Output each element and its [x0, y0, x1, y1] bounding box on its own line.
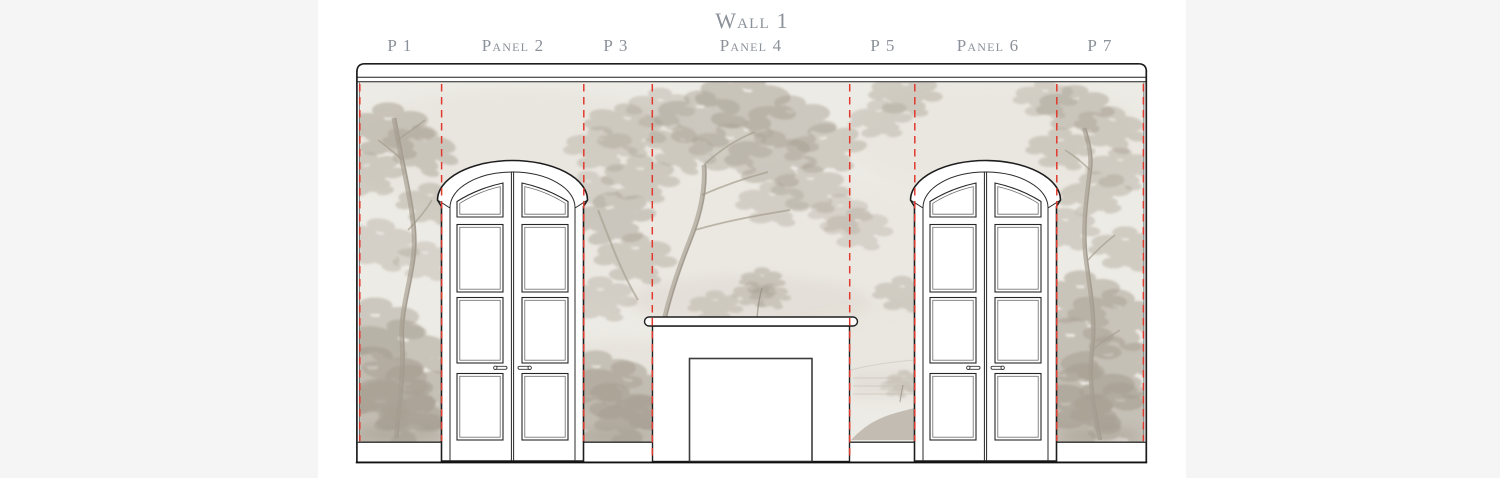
left-door	[438, 161, 588, 462]
fireplace	[645, 317, 858, 462]
drawing-page: Wall 1 P 1 Panel 2 P 3 Panel 4 P 5 Panel…	[0, 0, 1500, 478]
firebox	[690, 359, 813, 462]
right-door	[911, 161, 1061, 462]
mantel-shelf	[645, 317, 858, 326]
wall-elevation-drawing	[0, 0, 1500, 478]
crown-molding-band	[357, 64, 1146, 82]
